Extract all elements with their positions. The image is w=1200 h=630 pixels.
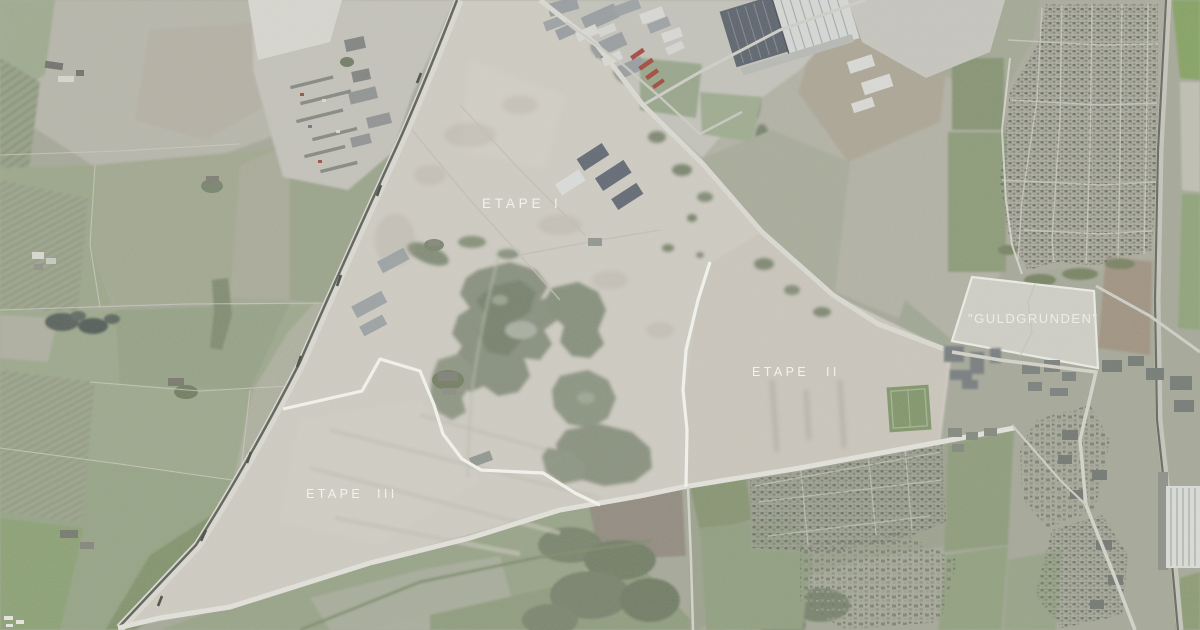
svg-text:"GULDGRUNDEN": "GULDGRUNDEN" (968, 311, 1099, 326)
svg-text:ETAPE: ETAPE (306, 487, 363, 501)
svg-text:II: II (826, 365, 840, 379)
svg-text:ETAPE: ETAPE (752, 365, 809, 379)
svg-text:ETAPE: ETAPE (482, 196, 544, 211)
svg-text:I: I (554, 196, 562, 211)
svg-text:III: III (377, 487, 398, 501)
